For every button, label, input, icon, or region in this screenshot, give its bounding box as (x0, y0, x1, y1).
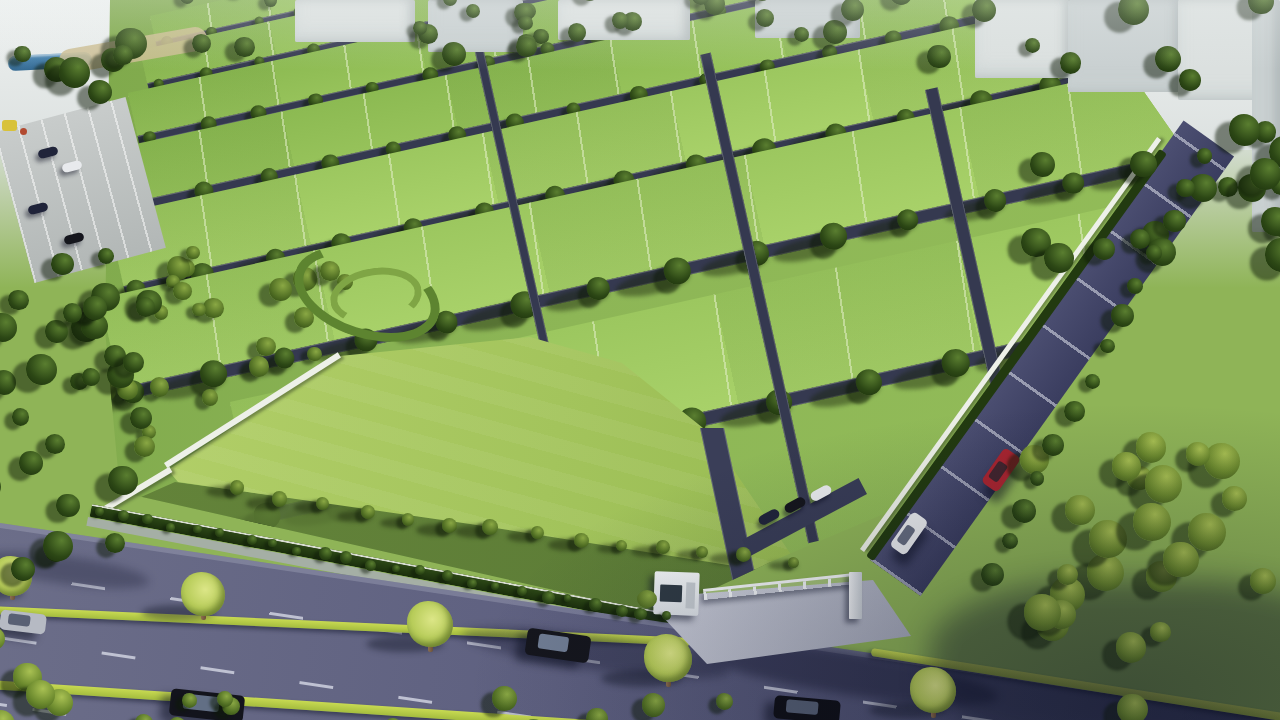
forest-top-tree (580, 0, 599, 1)
perimeter-outer-trees (1100, 339, 1115, 354)
forest-top-tree (841, 0, 864, 21)
forest-bottom-right-tree (1186, 442, 1210, 466)
forest-top-tree (234, 37, 255, 58)
forest-top-tree (264, 0, 277, 7)
forest-bottom-right-tree (1222, 486, 1247, 511)
forest-top-right-tree (1130, 229, 1150, 249)
forest-bottom-right-tree (1188, 513, 1225, 550)
forest-left-tree (136, 297, 156, 317)
perimeter-outer-trees (1111, 304, 1134, 327)
forest-top-tree (413, 21, 427, 35)
forest-left-tree (26, 354, 57, 385)
forest-bottom-right-tree (1087, 554, 1124, 591)
forest-left-tree (63, 303, 82, 322)
forest-top-tree (442, 42, 466, 66)
forest-top-right-tree (1250, 158, 1280, 189)
forest-left-tree (12, 408, 29, 425)
forest-left-tree (130, 407, 152, 429)
forest-bottom-right-tree (1250, 568, 1276, 594)
forest-left-tree (98, 248, 114, 264)
roadside-bush-tree (182, 693, 197, 708)
forest-top-right-tree (1060, 52, 1082, 74)
forest-left-tree (0, 370, 16, 395)
roadside-bush-tree (492, 686, 517, 711)
forest-top-tree (794, 27, 809, 42)
forest-top-right-tree (1248, 0, 1273, 14)
forest-left-tree (0, 474, 1, 499)
forest-top-right-tree (1265, 238, 1280, 272)
forest-bottom-right-tree (1204, 443, 1240, 479)
forest-top-right-tree (1261, 207, 1280, 236)
forest-top-right-tree (1118, 0, 1149, 25)
forest-left-tree (83, 296, 107, 320)
forest-bottom-right-tree (1089, 520, 1127, 558)
forest-bottom-right-tree (1112, 452, 1141, 481)
roadside-bush-tree (642, 693, 665, 716)
forest-left-tree (45, 320, 68, 343)
forest-top-tree (192, 34, 211, 53)
forest-top-tree (704, 0, 725, 15)
forest-left-tree (88, 80, 112, 104)
forest-bottom-right-tree (1136, 432, 1166, 462)
perimeter-outer-trees (1163, 210, 1186, 233)
forest-left-tree (8, 290, 28, 310)
forest-top-right-tree (1130, 151, 1156, 177)
forest-left-tree (51, 253, 73, 275)
perimeter-outer-trees (981, 563, 1004, 586)
forest-bottom-right-tree (1057, 564, 1078, 585)
perimeter-outer-trees (1042, 434, 1064, 456)
corner-bush-tree (26, 680, 55, 709)
forest-belts (0, 0, 1280, 720)
forest-left-tree (14, 46, 31, 63)
forest-bottom-right-tree (1024, 594, 1061, 631)
forest-top-right-tree (1229, 114, 1260, 145)
forest-left-tree (105, 533, 125, 553)
forest-top-tree (927, 45, 951, 69)
perimeter-outer-trees (1002, 533, 1018, 549)
perimeter-outer-trees (1146, 245, 1161, 260)
forest-top-tree (1025, 38, 1040, 53)
forest-bottom-right-tree (1065, 495, 1095, 525)
forest-top-tree (890, 0, 913, 5)
forest-left-tree (19, 451, 43, 475)
perimeter-outer-trees (1012, 499, 1036, 523)
forest-bottom-right-tree (1117, 694, 1147, 720)
roadside-bush-tree (716, 693, 733, 710)
forest-left-tree (45, 434, 65, 454)
roadside-bush-tree (135, 714, 153, 720)
forest-left-tree (0, 313, 17, 342)
forest-top-tree (612, 12, 628, 28)
forest-bottom-right-tree (1163, 542, 1198, 577)
forest-top-right-tree (1093, 238, 1115, 260)
forest-top-tree (516, 37, 537, 58)
forest-left-tree (43, 531, 73, 561)
forest-left-tree (108, 466, 138, 496)
forest-top-right-tree (1218, 177, 1238, 197)
perimeter-outer-trees (1030, 471, 1044, 485)
forest-top-right-tree (1030, 152, 1056, 178)
forest-top-tree (113, 45, 132, 64)
forest-top-tree (443, 0, 457, 6)
forest-top-right-tree (1044, 243, 1074, 273)
roadside-bush-tree (217, 691, 233, 707)
forest-bottom-right-tree (1116, 632, 1147, 663)
perimeter-outer-trees (1064, 401, 1084, 421)
perimeter-outer-trees (1127, 278, 1143, 294)
forest-bottom-right-tree (1145, 465, 1182, 502)
forest-top-right-tree (1155, 46, 1181, 72)
forest-bottom-right-tree (1133, 503, 1170, 540)
forest-left-tree (59, 57, 90, 88)
forest-top-right-tree (1179, 69, 1201, 91)
roadside-bush-tree (586, 708, 607, 720)
forest-top-tree (756, 9, 774, 27)
forest-top-tree (972, 0, 996, 22)
corner-bush-tree (0, 710, 15, 720)
forest-left-tree (11, 557, 35, 581)
forest-top-tree (823, 20, 846, 43)
perimeter-outer-trees (1197, 148, 1213, 164)
forest-left-tree (56, 494, 79, 517)
forest-left-tree (123, 352, 144, 373)
corner-bush-tree (0, 627, 5, 650)
forest-bottom-right-tree (1150, 622, 1170, 642)
forest-top-tree (466, 4, 480, 18)
forest-left-tree (82, 368, 100, 386)
forest-top-tree (754, 0, 770, 1)
perimeter-outer-trees (1085, 374, 1100, 389)
forest-top-tree (518, 16, 532, 30)
aerial-render-scene (0, 0, 1280, 720)
forest-top-tree (568, 23, 586, 41)
forest-top-tree (180, 0, 195, 4)
